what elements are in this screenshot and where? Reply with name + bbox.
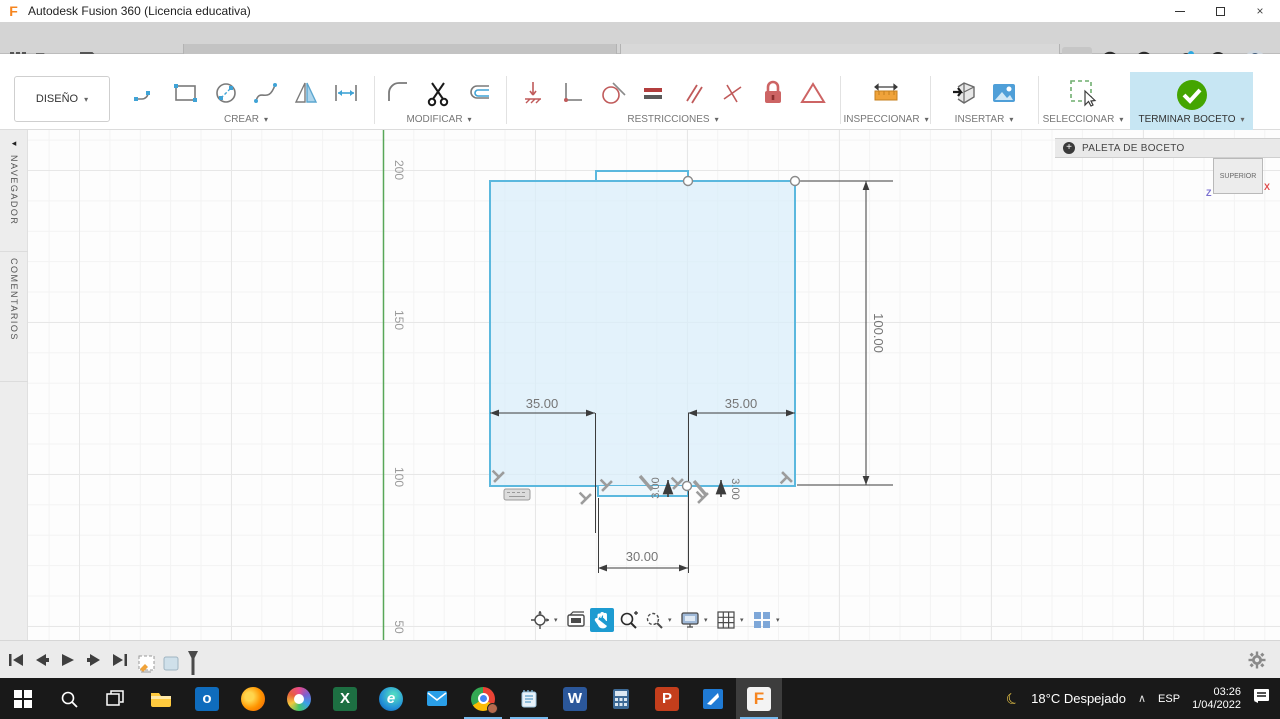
go-to-start-icon[interactable] — [6, 649, 26, 671]
snipping-tool-icon[interactable] — [690, 678, 736, 719]
orbit-caret[interactable]: ▾ — [554, 616, 562, 624]
group-restricciones: RESTRICCIONES▾ — [512, 74, 834, 128]
orbit-icon[interactable] — [528, 608, 552, 632]
notepad-icon[interactable] — [506, 678, 552, 719]
constraint-fix-icon[interactable] — [798, 78, 828, 108]
create-mirror-icon[interactable] — [291, 78, 321, 108]
group-insertar: INSERTAR▾ — [936, 74, 1032, 128]
viewcube[interactable]: SUPERIOR — [1213, 158, 1263, 194]
calculator-icon[interactable] — [598, 678, 644, 719]
start-button[interactable] — [0, 678, 46, 719]
paint-icon[interactable] — [276, 678, 322, 719]
constraint-coincident-icon[interactable] — [518, 78, 548, 108]
word-icon[interactable]: W — [552, 678, 598, 719]
display-settings-caret[interactable]: ▾ — [704, 616, 712, 624]
ribbon-tab-row: SOLIDO SUPERFICIE MALLA CHAPA PLÁSTICO U… — [0, 54, 1280, 72]
system-tray: ☾ 18°C Despejado ∧ ESP 03:261/04/2022 — [1006, 678, 1280, 719]
windows-taskbar: o X e W P F ☾ 18°C Despejado ∧ ESP 03:26… — [0, 678, 1280, 719]
create-spline-icon[interactable] — [251, 78, 281, 108]
comentarios-panel-tab[interactable]: COMENTARIOS — [0, 252, 28, 382]
left-rail: ◂ NAVEGADOR COMENTARIOS — [0, 130, 28, 640]
grid-snap-icon[interactable] — [714, 608, 738, 632]
notification-center-icon[interactable] — [1253, 688, 1270, 709]
group-label-crear[interactable]: CREAR▾ — [224, 114, 268, 125]
weather-moon-icon[interactable]: ☾ — [1003, 688, 1023, 710]
language-indicator[interactable]: ESP — [1158, 693, 1180, 705]
search-icon[interactable] — [46, 678, 92, 719]
outlook-icon[interactable]: o — [184, 678, 230, 719]
group-label-seleccionar[interactable]: SELECCIONAR▾ — [1043, 114, 1124, 125]
constraint-lock-icon[interactable] — [758, 78, 788, 108]
group-modificar: MODIFICAR▾ — [380, 74, 498, 128]
play-icon[interactable] — [58, 649, 78, 671]
finish-sketch-button[interactable]: TERMINAR BOCETO▾ — [1130, 72, 1253, 130]
chrome-profile-avatar — [487, 703, 498, 714]
fusion360-window: F Autodesk Fusion 360 (Licencia educativ… — [0, 0, 1280, 719]
create-rectangle-icon[interactable] — [171, 78, 201, 108]
sketch-palette-header[interactable]: + PALETA DE BOCETO — [1055, 138, 1280, 158]
close-button[interactable]: × — [1240, 0, 1280, 22]
viewports-caret[interactable]: ▾ — [776, 616, 784, 624]
palette-title: PALETA DE BOCETO — [1082, 143, 1185, 154]
collapse-arrow-icon: ◂ — [12, 138, 17, 149]
app-title: Autodesk Fusion 360 (Licencia educativa) — [28, 4, 251, 18]
weather-temp[interactable]: 18°C Despejado — [1031, 691, 1126, 706]
viewcube-z-axis-label: Z — [1206, 188, 1212, 198]
timeline-feature-2[interactable] — [162, 652, 182, 681]
maximize-button[interactable] — [1200, 0, 1240, 22]
viewcube-x-axis-label: X — [1264, 182, 1270, 192]
create-dimension-icon[interactable] — [331, 78, 361, 108]
go-to-end-icon[interactable] — [110, 649, 130, 671]
navegador-panel-tab[interactable]: ◂ NAVEGADOR — [0, 130, 28, 252]
group-label-modificar[interactable]: MODIFICAR▾ — [406, 114, 471, 125]
timeline-sketch-feature[interactable] — [136, 652, 158, 681]
group-label-inspeccionar[interactable]: INSPECCIONAR▾ — [843, 114, 928, 125]
fusion-logo-icon: F — [6, 3, 21, 18]
zoom-window-icon[interactable] — [642, 608, 666, 632]
comentarios-label: COMENTARIOS — [9, 258, 19, 341]
step-forward-icon[interactable] — [84, 649, 104, 671]
fusion360-taskbar-icon[interactable]: F — [736, 678, 782, 719]
finish-check-icon — [1175, 78, 1209, 112]
timeline-settings-gear-icon[interactable] — [1248, 651, 1266, 669]
zoom-window-caret[interactable]: ▾ — [668, 616, 676, 624]
fillet-icon[interactable] — [384, 78, 414, 108]
look-at-icon[interactable] — [564, 608, 588, 632]
navigation-toolbar: ▾ ▾ ▾ ▾ ▾ — [528, 607, 784, 633]
group-label-insertar[interactable]: INSERTAR▾ — [955, 114, 1014, 125]
constraint-vertical-horizontal-icon[interactable] — [558, 78, 588, 108]
navegador-label: NAVEGADOR — [9, 155, 19, 225]
sketch-canvas[interactable] — [28, 130, 1280, 640]
group-seleccionar: SELECCIONAR▾ — [1042, 74, 1124, 128]
mail-icon[interactable] — [414, 678, 460, 719]
finish-sketch-label: TERMINAR BOCETO▾ — [1138, 114, 1244, 125]
constraint-equal-icon[interactable] — [638, 78, 668, 108]
firefox-icon[interactable] — [230, 678, 276, 719]
create-line-icon[interactable] — [131, 78, 161, 108]
chrome-icon[interactable] — [460, 678, 506, 719]
group-inspeccionar: INSPECCIONAR▾ — [846, 74, 926, 128]
viewports-icon[interactable] — [750, 608, 774, 632]
display-settings-icon[interactable] — [678, 608, 702, 632]
create-circle-icon[interactable] — [211, 78, 241, 108]
step-back-icon[interactable] — [32, 649, 52, 671]
minimize-button[interactable] — [1160, 0, 1200, 22]
grid-snap-caret[interactable]: ▾ — [740, 616, 748, 624]
task-view-icon[interactable] — [92, 678, 138, 719]
constraint-parallel-icon[interactable] — [678, 78, 708, 108]
ribbon-toolbar: DISEÑO▾ CREAR▾ MODIFICAR▾ — [0, 72, 1280, 130]
measure-icon[interactable] — [871, 78, 901, 108]
design-workspace-dropdown[interactable]: DISEÑO▾ — [14, 76, 110, 122]
zoom-icon[interactable] — [616, 608, 640, 632]
document-tab-bar: ▾ ▾ ▾ Ensamble v3* × Cara Base v1* × + 1 — [0, 22, 1280, 54]
clock-date[interactable]: 03:261/04/2022 — [1192, 686, 1241, 712]
insert-image-icon[interactable] — [989, 78, 1019, 108]
file-explorer-icon[interactable] — [138, 678, 184, 719]
offset-icon[interactable] — [464, 78, 494, 108]
tray-chevron-icon[interactable]: ∧ — [1138, 692, 1146, 705]
powerpoint-icon[interactable]: P — [644, 678, 690, 719]
palette-expand-icon[interactable]: + — [1063, 142, 1075, 154]
excel-icon[interactable]: X — [322, 678, 368, 719]
group-crear: CREAR▾ — [122, 74, 370, 128]
select-icon[interactable] — [1068, 78, 1098, 108]
edge-icon[interactable]: e — [368, 678, 414, 719]
title-bar: F Autodesk Fusion 360 (Licencia educativ… — [0, 0, 1280, 22]
timeline-bar — [0, 640, 1280, 678]
pan-icon[interactable] — [590, 608, 614, 632]
constraint-perpendicular-icon[interactable] — [718, 78, 748, 108]
constraint-tangent-icon[interactable] — [598, 78, 628, 108]
timeline-playback — [6, 649, 130, 671]
insert-derive-icon[interactable] — [949, 78, 979, 108]
group-label-restricciones[interactable]: RESTRICCIONES▾ — [627, 114, 718, 125]
trim-scissors-icon[interactable] — [424, 78, 454, 108]
